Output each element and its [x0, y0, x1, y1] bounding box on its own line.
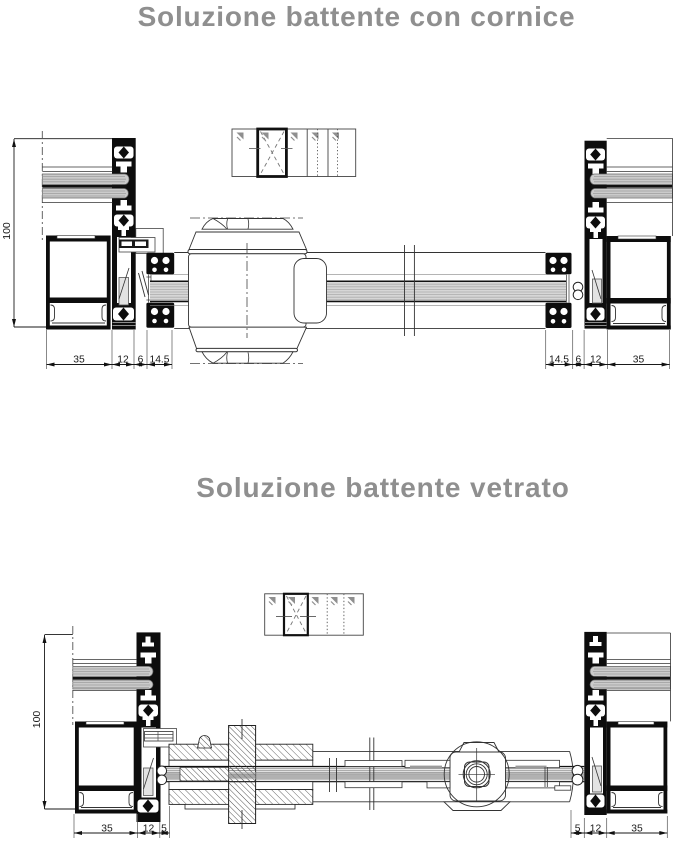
svg-text:100: 100: [1, 222, 13, 240]
svg-text:5: 5: [575, 824, 581, 835]
svg-text:12: 12: [590, 824, 602, 835]
svg-text:6: 6: [138, 355, 144, 366]
svg-text:100: 100: [31, 711, 43, 729]
svg-text:35: 35: [631, 824, 643, 835]
svg-text:Soluzione battente vetrato: Soluzione battente vetrato: [196, 472, 569, 503]
svg-text:12: 12: [117, 355, 129, 366]
svg-text:35: 35: [101, 824, 113, 835]
svg-text:12: 12: [590, 355, 602, 366]
svg-text:Soluzione battente con cornice: Soluzione battente con cornice: [138, 1, 576, 32]
svg-text:14.5: 14.5: [149, 355, 169, 366]
svg-text:14.5: 14.5: [549, 355, 569, 366]
svg-text:12: 12: [143, 824, 155, 835]
svg-text:5: 5: [161, 824, 167, 835]
svg-text:6: 6: [576, 355, 582, 366]
svg-text:35: 35: [73, 355, 85, 366]
svg-text:35: 35: [633, 355, 645, 366]
